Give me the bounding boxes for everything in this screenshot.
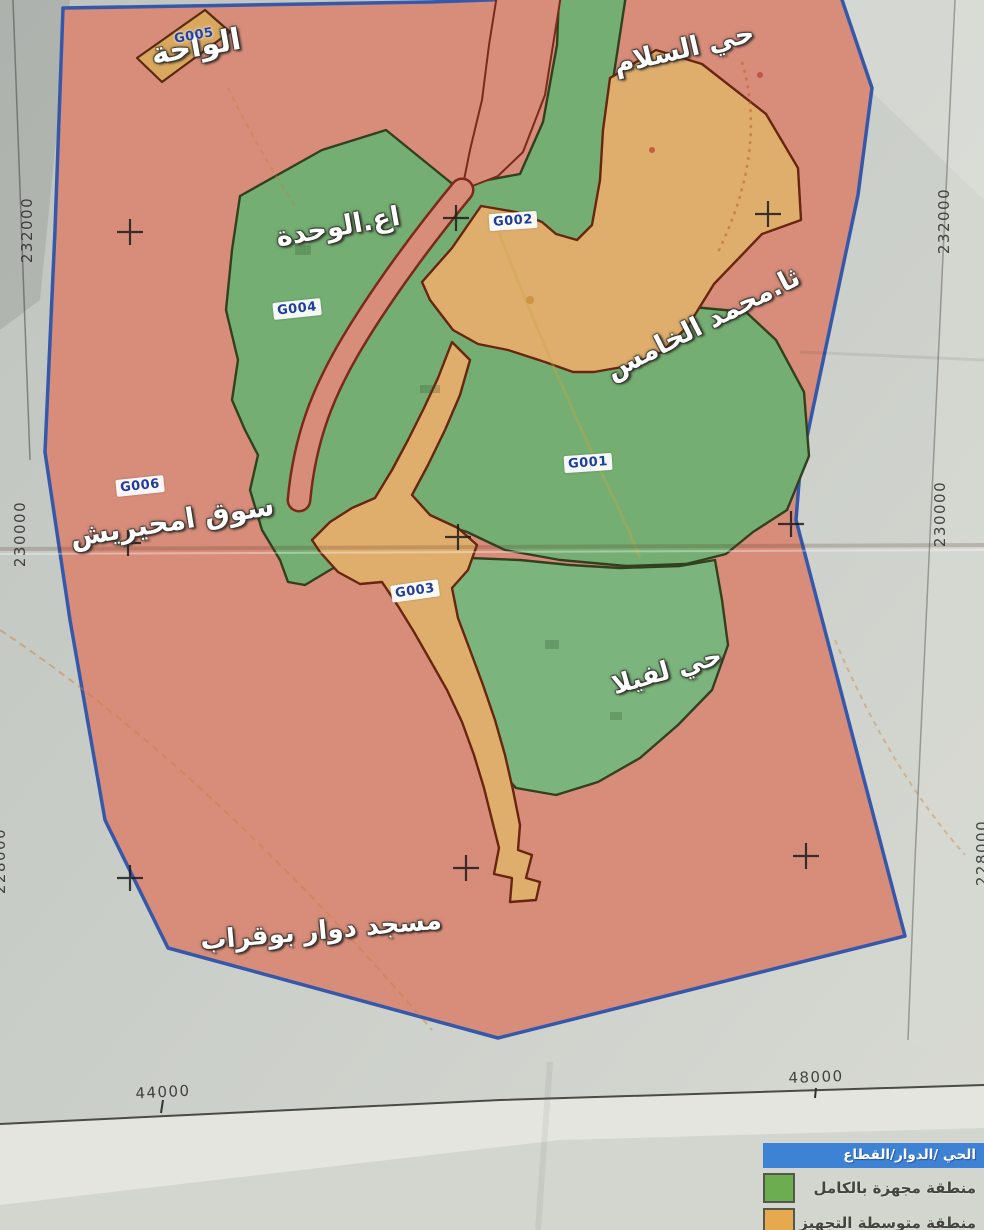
grid-label-left-230000: 230000 [11,501,29,567]
place-label-aa-alwahda: اع.الوحدة [274,201,403,253]
place-label-hay-alsalam: حي السلام [611,18,758,80]
grid-label-bottom-48000: 48000 [788,1067,844,1087]
grid-label-left-228000: 228000 [0,828,9,894]
labels-layer: الواحة حي السلام اع.الوحدة ثا.محمد الخام… [0,0,984,1230]
grid-label-right-230000: 230000 [931,481,949,547]
map-legend: الحي /الدوار/القطاع منطقة مجهزة بالكامل … [763,1143,984,1230]
legend-title: الحي /الدوار/القطاع [763,1143,984,1168]
legend-label-medium-equipped: منطقة متوسطة التجهيز [795,1214,984,1230]
zone-code-g001: G001 [564,453,613,473]
place-label-tha-mohamed-alkhamis: ثا.محمد الخامس [601,262,805,387]
place-label-souk-amhirich: سوق امحيريش [68,489,277,554]
grid-label-right-228000: 228000 [973,820,984,886]
grid-label-right-232000: 232000 [935,188,953,254]
grid-label-left-232000: 232000 [18,197,36,263]
place-label-hay-lavilla: حي لفيلا [609,641,726,701]
zone-code-g004: G004 [272,298,321,320]
zone-code-g006: G006 [115,475,164,497]
scanned-zoning-map: الواحة حي السلام اع.الوحدة ثا.محمد الخام… [0,0,984,1230]
place-label-masjid-douar-bouqrab: مسجد دوار بوقراب [199,906,443,957]
legend-row-medium-equipped: منطقة متوسطة التجهيز [763,1208,984,1230]
legend-row-fully-equipped: منطقة مجهزة بالكامل [763,1173,984,1203]
zone-code-g002: G002 [489,211,538,231]
legend-swatch-green [763,1173,795,1203]
legend-label-fully-equipped: منطقة مجهزة بالكامل [795,1179,984,1197]
legend-swatch-orange [763,1208,795,1230]
zone-code-g003: G003 [390,579,440,602]
grid-label-bottom-44000: 44000 [135,1082,191,1103]
